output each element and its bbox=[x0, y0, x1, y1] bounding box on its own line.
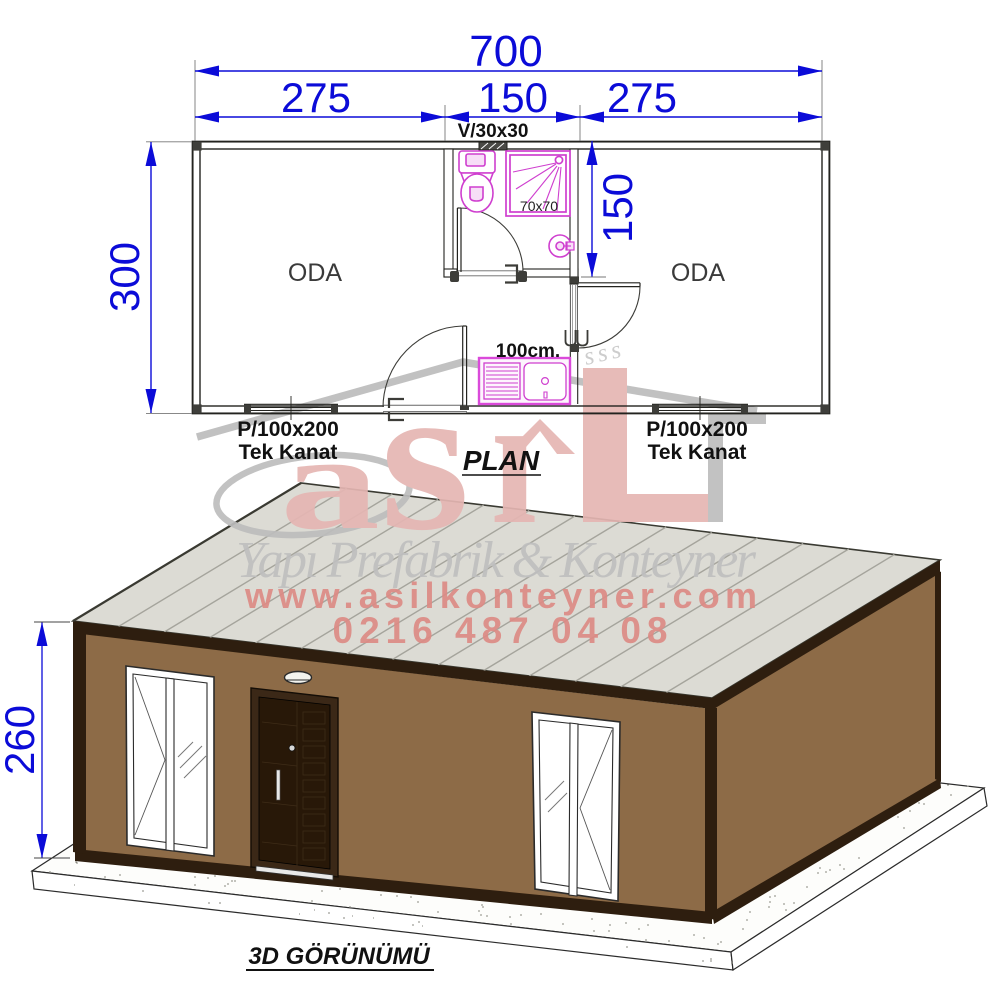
svg-text:150: 150 bbox=[594, 173, 641, 243]
svg-text:Tek Kanat: Tek Kanat bbox=[648, 441, 747, 464]
svg-text:Tek Kanat: Tek Kanat bbox=[239, 441, 338, 464]
svg-text:ODA: ODA bbox=[288, 259, 343, 287]
svg-text:P/100x200: P/100x200 bbox=[237, 418, 339, 441]
svg-text:300: 300 bbox=[101, 242, 148, 312]
svg-text:700: 700 bbox=[469, 27, 542, 76]
svg-text:275: 275 bbox=[607, 74, 677, 121]
svg-text:100cm.: 100cm. bbox=[496, 341, 560, 362]
svg-text:70x70: 70x70 bbox=[520, 198, 558, 214]
svg-text:150: 150 bbox=[478, 74, 548, 121]
svg-text:3D GÖRÜNÜMÜ: 3D GÖRÜNÜMÜ bbox=[248, 943, 430, 970]
svg-text:ODA: ODA bbox=[671, 259, 726, 287]
svg-text:260: 260 bbox=[0, 705, 43, 775]
svg-text:275: 275 bbox=[281, 74, 351, 121]
svg-text:V/30x30: V/30x30 bbox=[458, 121, 529, 142]
svg-text:P/100x200: P/100x200 bbox=[646, 418, 748, 441]
svg-text:PLAN: PLAN bbox=[463, 445, 540, 476]
